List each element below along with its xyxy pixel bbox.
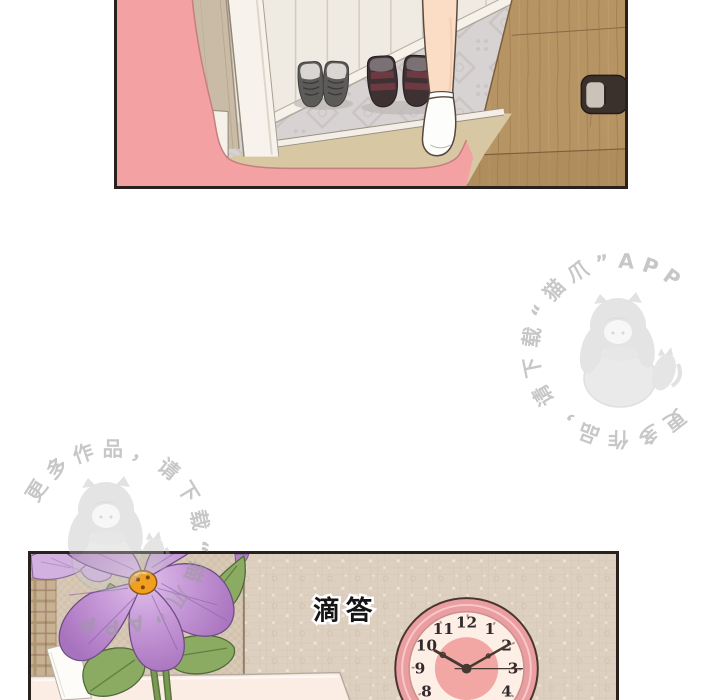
clock-number: 9 (415, 660, 426, 678)
top-panel (114, 0, 628, 189)
clock-number: 8 (421, 683, 432, 700)
comic-page: 12 1 2 3 4 5 6 7 8 9 10 11 (0, 0, 720, 700)
clock-number: 1 (484, 620, 495, 638)
bottom-panel: 12 1 2 3 4 5 6 7 8 9 10 11 (28, 551, 619, 700)
entryway-scene (117, 0, 625, 186)
clock-center-dot (462, 664, 471, 673)
clock-number: 10 (416, 637, 437, 655)
clock-number: 11 (433, 620, 454, 638)
watermark-mascot (576, 292, 681, 407)
door-handle-icon (581, 75, 625, 113)
watermark-right: 更多作品，请下载“猫爪”APP (519, 249, 691, 452)
flower-center (129, 571, 157, 595)
svg-text:更多作品，请下载“猫爪”APP: 更多作品，请下载“猫爪”APP (519, 249, 691, 452)
sfx-tick-tock: 滴答 (313, 596, 378, 627)
clock-number: 4 (501, 683, 512, 700)
clock-scene: 12 1 2 3 4 5 6 7 8 9 10 11 (31, 554, 616, 700)
watermark-ring-text: 更多作品，请下载“猫爪”APP (519, 249, 691, 452)
leg-with-white-sock (422, 0, 457, 156)
clock-number: 12 (456, 614, 477, 632)
